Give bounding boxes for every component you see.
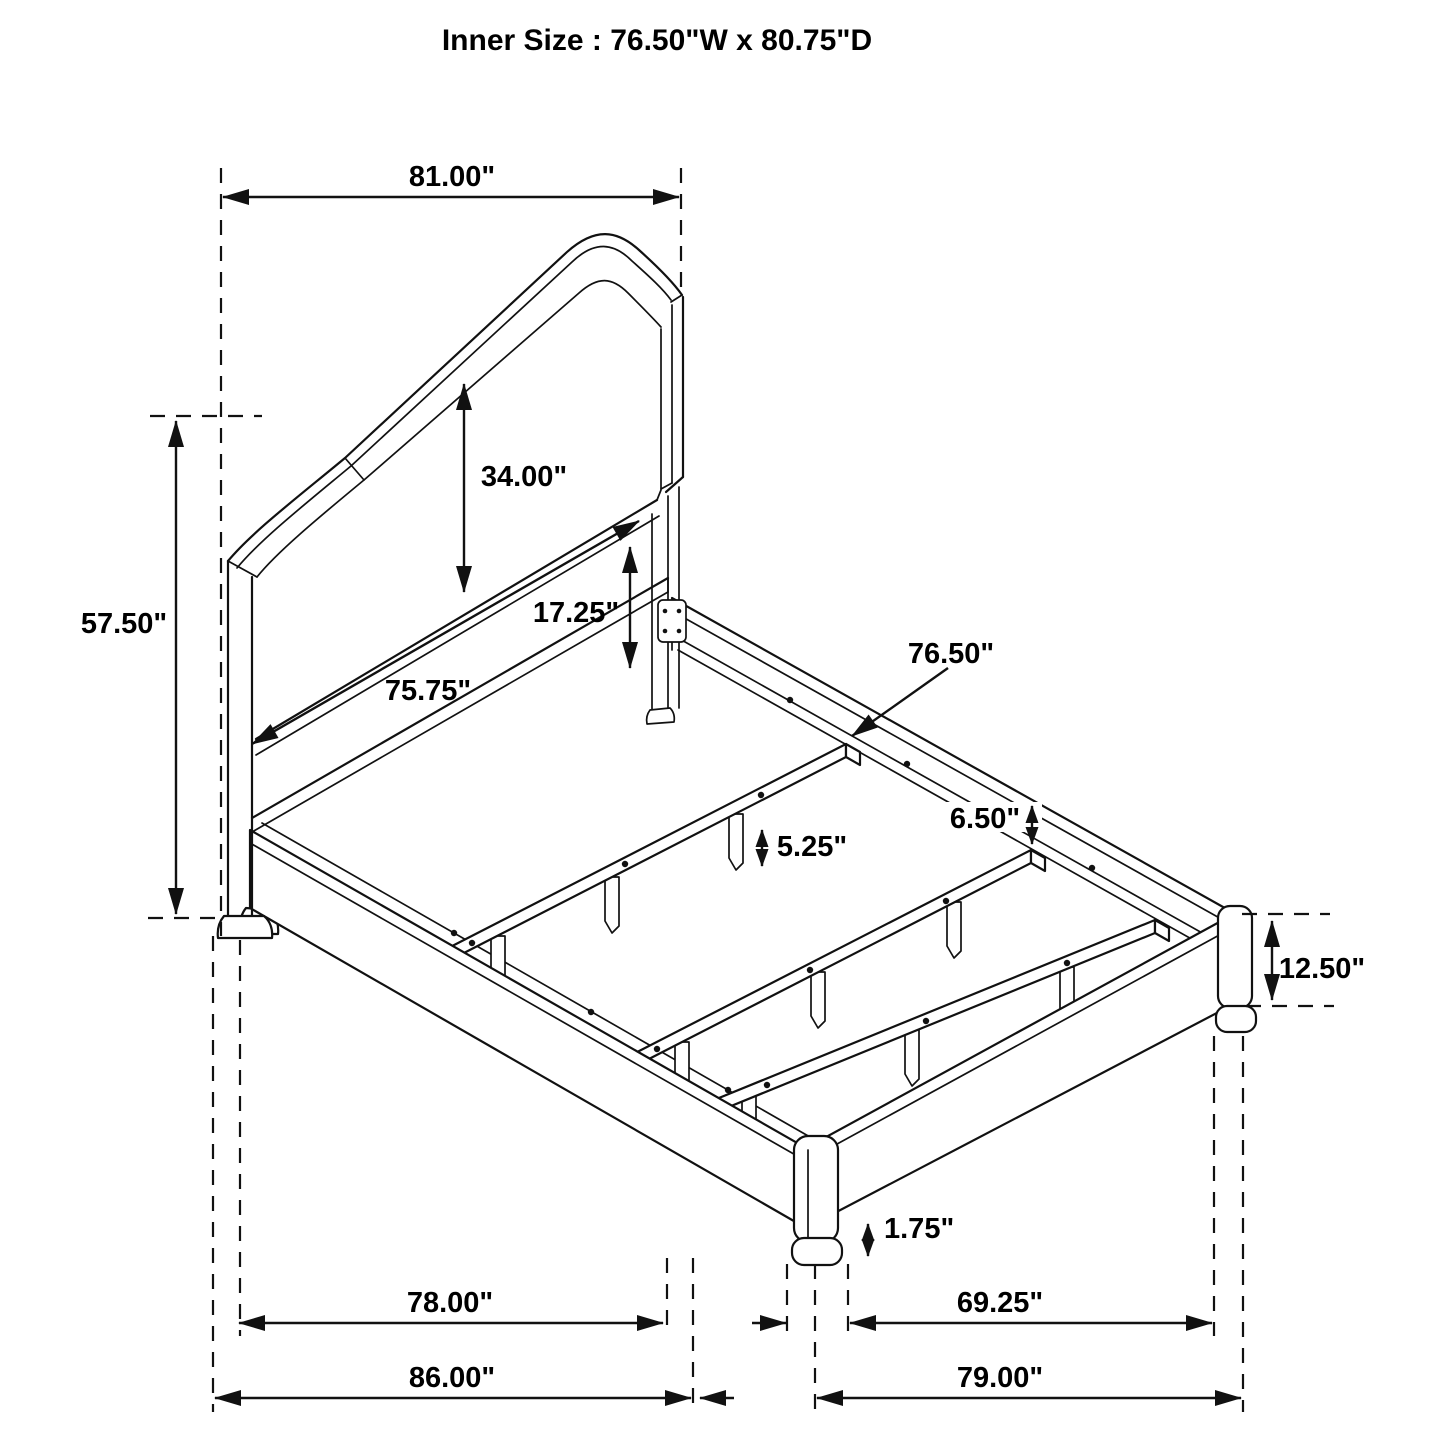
dim-label: 86.00"	[409, 1362, 495, 1394]
right-foot	[1216, 1006, 1256, 1032]
dim-panel-height: 34.00"	[464, 384, 567, 592]
dim-label: 78.00"	[407, 1287, 493, 1319]
slat-leg	[605, 877, 619, 933]
dim-label: 76.50"	[908, 638, 994, 670]
slat-leg	[729, 814, 743, 870]
bed-frame-drawing	[218, 234, 1256, 1265]
dim-label: 81.00"	[409, 161, 495, 193]
dim-label: 75.75"	[385, 675, 471, 707]
dim-footboard-outer-width: 79.00"	[817, 1362, 1241, 1398]
dim-label: 34.00"	[481, 461, 567, 493]
dim-label: 5.25"	[777, 831, 847, 863]
dim-label: 6.50"	[950, 803, 1020, 835]
dim-label: 79.00"	[957, 1362, 1043, 1394]
dim-frame-length-inner: 78.00"	[239, 1287, 786, 1323]
dim-side-rail-height: 12.50"	[1272, 921, 1365, 1000]
left-rail-ledge	[262, 823, 810, 1137]
dim-headboard-height: 57.50"	[81, 421, 176, 914]
dim-slat-length: 76.50"	[852, 638, 994, 736]
dim-headboard-rail-length: 75.75"	[252, 521, 639, 744]
dim-label: 17.25"	[533, 597, 619, 629]
dimensions: 81.00" 57.50" 34.00" 17.25" 75.75" 76.50…	[81, 161, 1365, 1412]
bed-dimension-diagram: 81.00" 57.50" 34.00" 17.25" 75.75" 76.50…	[0, 0, 1445, 1445]
dim-overall-length: 86.00"	[215, 1362, 734, 1398]
dim-label: 57.50"	[81, 608, 167, 640]
footboard-rail	[806, 914, 1234, 1228]
dim-label: 1.75"	[884, 1213, 954, 1245]
dim-label: 12.50"	[1279, 953, 1365, 985]
headboard-right-foot	[647, 708, 675, 724]
front-foot	[792, 1238, 842, 1265]
headboard-left-foot	[218, 916, 272, 938]
page-title: Inner Size : 76.50"W x 80.75"D	[442, 24, 872, 57]
dim-footboard-inner-width: 69.25"	[850, 1287, 1212, 1323]
dim-slat-end-gap: 6.50"	[928, 802, 1042, 844]
slat-1	[421, 744, 860, 992]
left-side-rail	[240, 830, 806, 1228]
slat-leg	[905, 1030, 919, 1086]
slat-leg	[947, 902, 961, 958]
front-corner-post	[792, 1136, 842, 1265]
dim-label: 69.25"	[957, 1287, 1043, 1319]
diagram-canvas: 81.00" 57.50" 34.00" 17.25" 75.75" 76.50…	[0, 0, 1445, 1445]
right-corner-post	[1216, 906, 1256, 1032]
dim-slat-leg-height: 5.25"	[762, 830, 847, 866]
dim-foot-height: 1.75"	[868, 1213, 954, 1256]
dim-headboard-width: 81.00"	[223, 161, 679, 197]
slat-leg	[811, 972, 825, 1028]
headboard	[218, 234, 686, 938]
bracket-plate	[658, 600, 686, 642]
